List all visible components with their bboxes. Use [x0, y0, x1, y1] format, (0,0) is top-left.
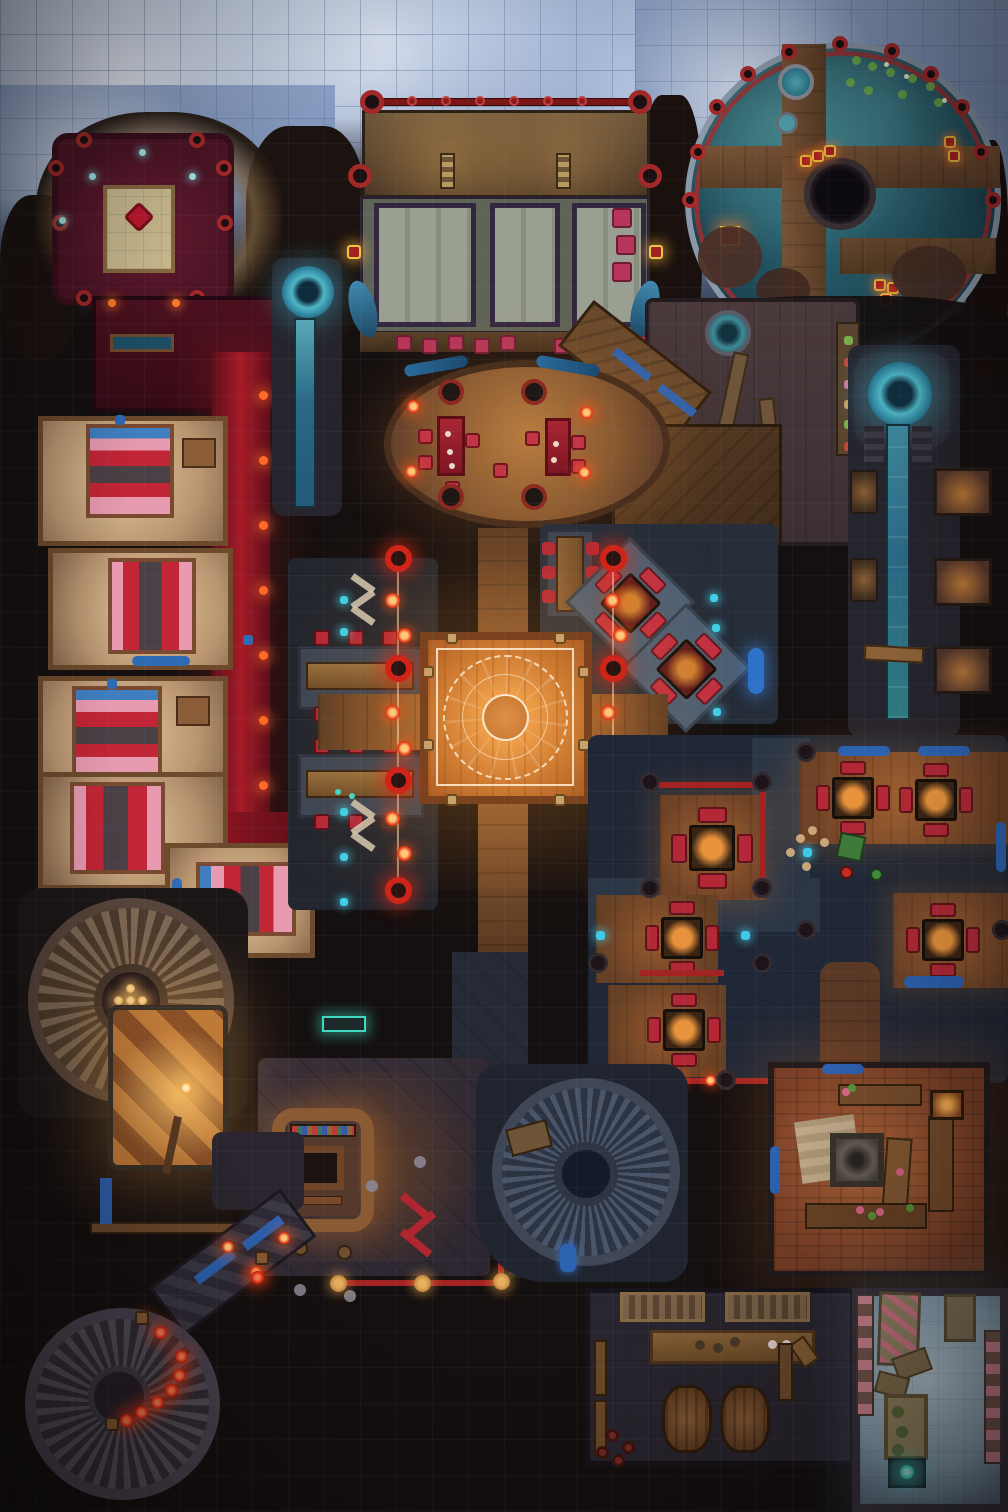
vignette: [0, 0, 1008, 1512]
battle-map: [0, 0, 1008, 1512]
